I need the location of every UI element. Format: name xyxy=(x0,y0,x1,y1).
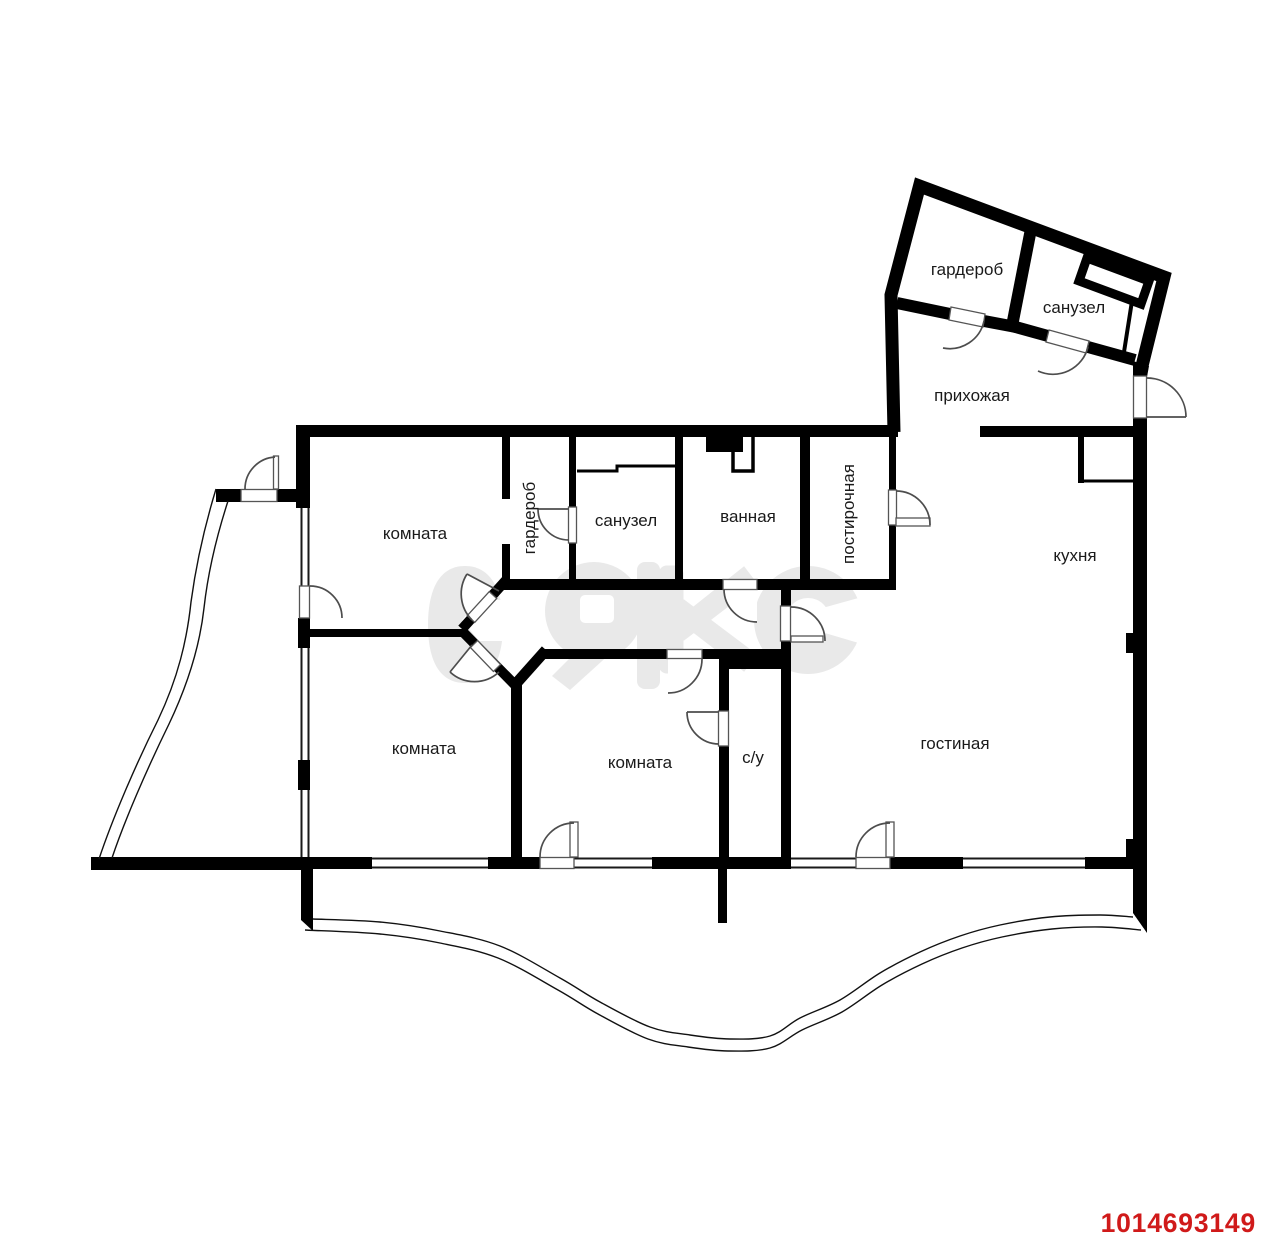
svg-text:комната: комната xyxy=(608,753,673,772)
svg-text:постирочная: постирочная xyxy=(839,464,858,564)
svg-text:прихожая: прихожая xyxy=(934,386,1010,405)
svg-text:1014693149: 1014693149 xyxy=(1101,1208,1256,1238)
svg-text:гостиная: гостиная xyxy=(920,734,989,753)
svg-text:гардероб: гардероб xyxy=(520,482,539,555)
svg-text:комната: комната xyxy=(392,739,457,758)
svg-text:гардероб: гардероб xyxy=(931,260,1004,279)
svg-text:санузел: санузел xyxy=(595,511,657,530)
svg-text:санузел: санузел xyxy=(1043,298,1105,317)
svg-text:с/у: с/у xyxy=(742,748,764,767)
svg-text:комната: комната xyxy=(383,524,448,543)
svg-text:ванная: ванная xyxy=(720,507,776,526)
svg-text:кухня: кухня xyxy=(1053,546,1096,565)
